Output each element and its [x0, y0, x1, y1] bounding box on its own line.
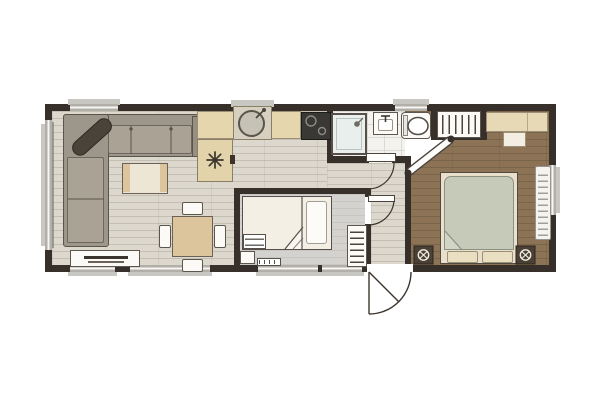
- twin-bed-pillow: [306, 201, 327, 244]
- hanging-clothes: [350, 229, 364, 263]
- window-sill: [256, 272, 320, 276]
- radiator-fins: [538, 170, 548, 236]
- window-bottom-3: [258, 265, 318, 272]
- window-sill: [68, 272, 117, 276]
- shower-tray-line: [336, 118, 362, 150]
- entrance-door-swing: [369, 272, 411, 314]
- window-top-right: [395, 104, 427, 111]
- window-front-left: [45, 120, 52, 250]
- window-sill: [320, 272, 364, 276]
- curtain-rail: [52, 122, 54, 248]
- window-top-left: [70, 104, 118, 111]
- dressing-table-seam: [527, 113, 528, 131]
- hallway-floor: [371, 163, 405, 265]
- twin-bedside-unit: [240, 251, 255, 264]
- coffee-table: [122, 163, 168, 194]
- tv-stand: [88, 261, 124, 263]
- corridor-floor: [327, 163, 371, 188]
- twin-wardrobe: [347, 225, 367, 267]
- kitchen-appliance: [197, 139, 233, 182]
- sofa-seat-cushions: [108, 125, 192, 154]
- master-bed-duvet: [444, 176, 514, 250]
- dressing-table: [486, 112, 548, 132]
- master-pillow-left: [447, 251, 478, 263]
- dining-chair-right: [214, 225, 226, 248]
- wall-top: [45, 104, 556, 111]
- master-wardrobe: [437, 111, 481, 138]
- washbasin: [373, 112, 398, 135]
- kitchen-sink: [238, 110, 265, 137]
- sofa-chaise-cushion: [67, 157, 104, 243]
- window-sill: [556, 167, 560, 213]
- coffee-table-side: [160, 164, 167, 192]
- washbasin-bowl: [378, 119, 393, 131]
- twin-heater: [257, 258, 281, 266]
- hanging-clothes: [442, 115, 476, 134]
- master-pillow-right: [482, 251, 513, 263]
- heater-fins: [259, 260, 279, 264]
- kitchen-hob: [301, 112, 331, 140]
- stool: [503, 132, 526, 147]
- dining-table: [172, 216, 213, 257]
- appliance-knob: [230, 155, 235, 164]
- shower-enclosure: [331, 113, 367, 155]
- window-sill: [128, 272, 212, 276]
- toilet-cistern: [403, 115, 408, 136]
- wall-twin-top: [234, 188, 371, 194]
- wall-master-west: [405, 160, 411, 265]
- twin-bed-steps: [243, 234, 266, 249]
- dining-chair-top: [182, 202, 203, 215]
- tv-screen: [84, 256, 128, 259]
- twin-bedroom-door-leaf: [368, 195, 395, 202]
- dining-chair-left: [159, 225, 171, 248]
- bathroom-door-leaf: [366, 153, 396, 162]
- wall-bathroom-south-a: [327, 156, 369, 163]
- floorplan-canvas: [0, 0, 600, 400]
- steps-rungs: [245, 237, 264, 246]
- coffee-table-side: [123, 164, 130, 192]
- dining-chair-bottom: [182, 259, 203, 272]
- radiator: [535, 166, 551, 240]
- entrance-doorway-gap: [367, 264, 413, 273]
